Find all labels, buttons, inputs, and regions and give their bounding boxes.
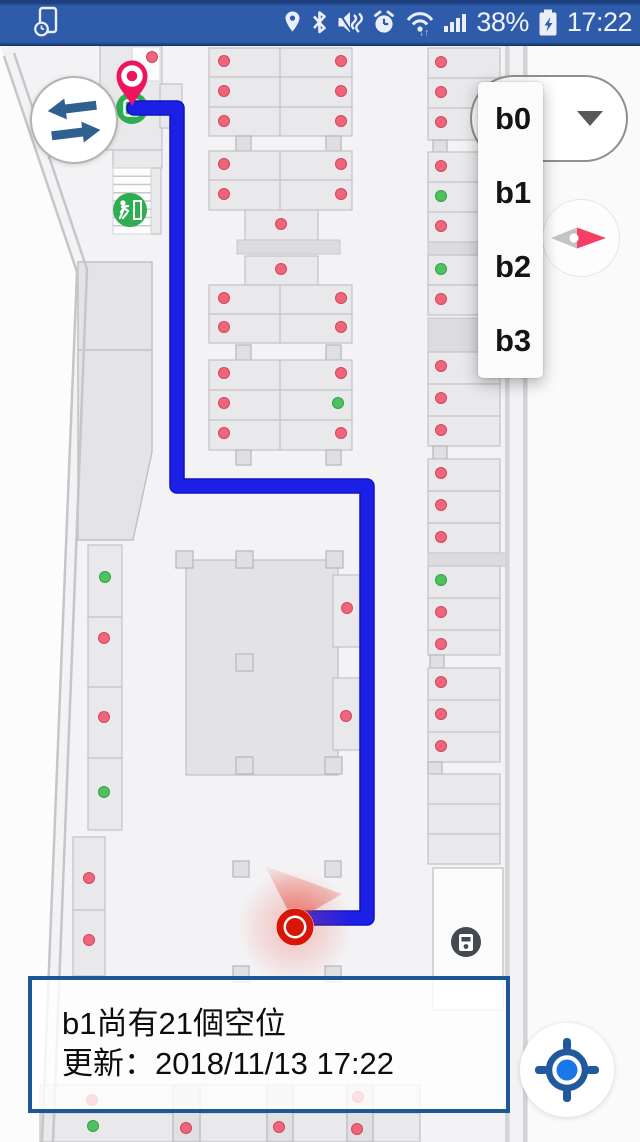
swap-route-button[interactable]	[30, 76, 118, 164]
ramp-area	[78, 262, 152, 540]
mute-vibrate-icon	[336, 9, 363, 36]
marker-center	[286, 918, 304, 936]
parking-stall	[113, 150, 162, 168]
floor-option-b3[interactable]: b3	[478, 304, 543, 378]
occupancy-dot-occupied	[436, 117, 447, 128]
occupancy-dot-occupied	[219, 293, 230, 304]
pillar	[233, 861, 249, 877]
occupancy-dot-occupied	[336, 293, 347, 304]
svg-text:↓↑: ↓↑	[419, 28, 429, 37]
occupancy-dot-occupied	[336, 86, 347, 97]
occupancy-dot-occupied	[219, 368, 230, 379]
alarm-icon	[371, 9, 397, 36]
occupancy-dot-occupied	[219, 86, 230, 97]
screen-timeout-icon	[32, 6, 62, 38]
pillar	[326, 551, 343, 568]
occupancy-dot-occupied	[84, 935, 95, 946]
occupancy-dot-occupied	[436, 468, 447, 479]
occupancy-dot-occupied	[219, 398, 230, 409]
pillar	[236, 345, 251, 360]
occupancy-dot-occupied	[219, 189, 230, 200]
occupancy-dot-occupied	[336, 189, 347, 200]
pillar	[428, 762, 442, 774]
occupancy-dot-occupied	[147, 52, 158, 63]
occupancy-dot-occupied	[336, 159, 347, 170]
status-right: ↓↑ 38% 17:22	[282, 7, 632, 38]
occupancy-dot-occupied	[181, 1123, 192, 1134]
battery-icon	[537, 8, 559, 37]
swap-arrows-icon	[32, 78, 116, 162]
occupancy-dot-occupied	[219, 322, 230, 333]
occupancy-dot-occupied	[436, 607, 447, 618]
pillar	[433, 140, 447, 152]
floor-dropdown-menu: b0 b1 b2 b3	[478, 82, 543, 378]
occupancy-dot-occupied	[336, 56, 347, 67]
occupancy-dot-occupied	[341, 711, 352, 722]
parking-stall	[428, 834, 500, 864]
occupancy-dot-occupied	[99, 633, 110, 644]
occupancy-dot-free	[436, 575, 447, 586]
bluetooth-icon	[311, 9, 328, 36]
pillar	[236, 654, 253, 671]
clock: 17:22	[567, 7, 632, 38]
parking-stall	[428, 774, 500, 804]
occupancy-dot-occupied	[436, 294, 447, 305]
status-bar: ↓↑ 38% 17:22	[0, 0, 640, 46]
occupancy-dot-free	[436, 264, 447, 275]
battery-percent: 38%	[476, 7, 529, 38]
occupancy-dot-occupied	[436, 361, 447, 372]
pillar	[325, 861, 341, 877]
occupancy-dot-occupied	[219, 428, 230, 439]
occupancy-dot-occupied	[219, 56, 230, 67]
compass-needle-icon	[543, 200, 619, 276]
occupancy-dot-occupied	[276, 264, 287, 275]
pillar	[326, 450, 341, 465]
pay-station-icon	[451, 927, 481, 957]
occupancy-dot-occupied	[84, 873, 95, 884]
occupancy-dot-occupied	[276, 219, 287, 230]
occupancy-dot-occupied	[352, 1124, 363, 1135]
occupancy-dot-free	[99, 787, 110, 798]
app-screen: ↓↑ 38% 17:22	[0, 0, 640, 1142]
pillar	[236, 551, 253, 568]
lane-band	[237, 240, 340, 254]
parking-stall	[428, 804, 500, 834]
occupancy-dot-free	[436, 191, 447, 202]
occupancy-dot-free	[100, 572, 111, 583]
core-block	[186, 560, 338, 775]
indoor-parking-map[interactable]	[0, 0, 640, 1142]
location-icon	[282, 8, 303, 36]
occupancy-dot-occupied	[436, 87, 447, 98]
pillar	[236, 136, 251, 151]
occupancy-dot-occupied	[436, 709, 447, 720]
floor-option-b2[interactable]: b2	[478, 230, 543, 304]
chevron-down-icon	[577, 111, 603, 126]
occupancy-dot-occupied	[436, 425, 447, 436]
floor-option-b1[interactable]: b1	[478, 156, 543, 230]
occupancy-dot-occupied	[436, 221, 447, 232]
occupancy-dot-occupied	[99, 712, 110, 723]
pillar	[433, 446, 447, 459]
occupancy-dot-occupied	[342, 603, 353, 614]
occupancy-dot-occupied	[436, 393, 447, 404]
updated-text: 更新：2018/11/13 17:22	[62, 1048, 506, 1081]
pillar	[236, 450, 251, 465]
occupancy-dot-free	[333, 398, 344, 409]
signal-icon	[443, 9, 468, 35]
lane-band	[428, 553, 507, 566]
wifi-icon: ↓↑	[405, 8, 435, 36]
occupancy-dot-occupied	[336, 322, 347, 333]
availability-info-box: b1尚有21個空位 更新：2018/11/13 17:22	[28, 976, 510, 1113]
parking-stall	[88, 617, 122, 687]
pillar	[326, 136, 341, 151]
pillar	[326, 345, 341, 360]
pillar	[430, 655, 444, 668]
parking-stall	[151, 168, 161, 234]
emergency-exit-icon	[113, 193, 147, 227]
occupancy-dot-occupied	[336, 116, 347, 127]
occupancy-dot-occupied	[219, 116, 230, 127]
status-left	[32, 6, 62, 38]
occupancy-dot-occupied	[436, 532, 447, 543]
pillar	[325, 757, 342, 774]
occupancy-dot-occupied	[436, 57, 447, 68]
my-location-button[interactable]	[520, 1023, 614, 1117]
occupancy-dot-occupied	[219, 159, 230, 170]
occupancy-dot-occupied	[436, 500, 447, 511]
compass-button[interactable]	[542, 199, 620, 277]
occupancy-dot-occupied	[436, 161, 447, 172]
occupancy-dot-occupied	[274, 1122, 285, 1133]
floor-option-b0[interactable]: b0	[478, 82, 543, 156]
occupancy-dot-occupied	[436, 677, 447, 688]
pillar	[176, 551, 193, 568]
occupancy-dot-occupied	[336, 368, 347, 379]
occupancy-dot-occupied	[436, 741, 447, 752]
crosshair-icon	[520, 1023, 614, 1117]
occupancy-dot-occupied	[336, 428, 347, 439]
occupancy-dot-free	[88, 1121, 99, 1132]
occupancy-dot-occupied	[436, 639, 447, 650]
availability-text: b1尚有21個空位	[62, 1008, 506, 1041]
pillar	[236, 757, 253, 774]
